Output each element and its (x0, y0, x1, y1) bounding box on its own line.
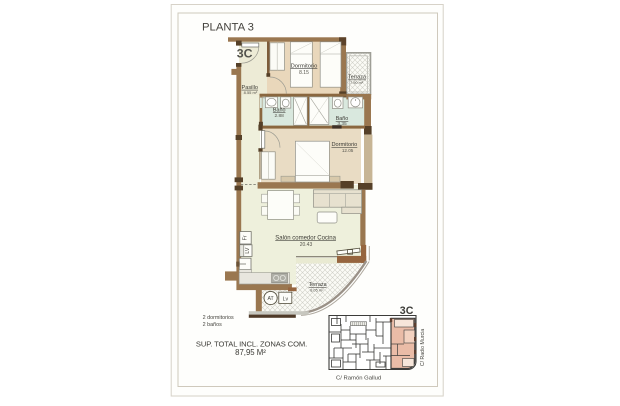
svg-text:87,95 M²: 87,95 M² (235, 348, 266, 357)
svg-text:Baño: Baño (336, 116, 349, 122)
svg-text:8.55 m²: 8.55 m² (244, 90, 258, 95)
svg-text:20.43: 20.43 (300, 242, 313, 248)
svg-text:C/ Ramón Gallud: C/ Ramón Gallud (336, 375, 381, 381)
svg-text:PLANTA 3: PLANTA 3 (202, 22, 254, 34)
svg-text:8.05 m²: 8.05 m² (310, 287, 324, 292)
svg-text:AT: AT (267, 296, 274, 302)
svg-text:3C: 3C (237, 47, 253, 61)
svg-text:8.15: 8.15 (299, 70, 309, 76)
svg-text:2 baños: 2 baños (203, 322, 222, 328)
svg-text:Salón comedor Cocina: Salón comedor Cocina (275, 235, 336, 241)
svg-text:SUP. TOTAL INCL. ZONAS COM.: SUP. TOTAL INCL. ZONAS COM. (196, 339, 307, 348)
svg-text:2 dormitorios: 2 dormitorios (203, 315, 234, 321)
svg-text:Dormitorio: Dormitorio (291, 63, 318, 69)
svg-text:Lv: Lv (283, 296, 289, 302)
svg-text:3C: 3C (400, 305, 414, 317)
svg-text:12.05: 12.05 (342, 148, 354, 153)
svg-text:Fr: Fr (243, 235, 249, 240)
svg-text:LV: LV (245, 247, 251, 253)
svg-text:3.35: 3.35 (337, 121, 347, 127)
svg-text:Baño: Baño (273, 107, 286, 113)
svg-text:2.88: 2.88 (275, 113, 285, 119)
svg-text:C/ Radio Murcia: C/ Radio Murcia (420, 329, 426, 366)
svg-text:7.90 m²: 7.90 m² (350, 80, 364, 85)
